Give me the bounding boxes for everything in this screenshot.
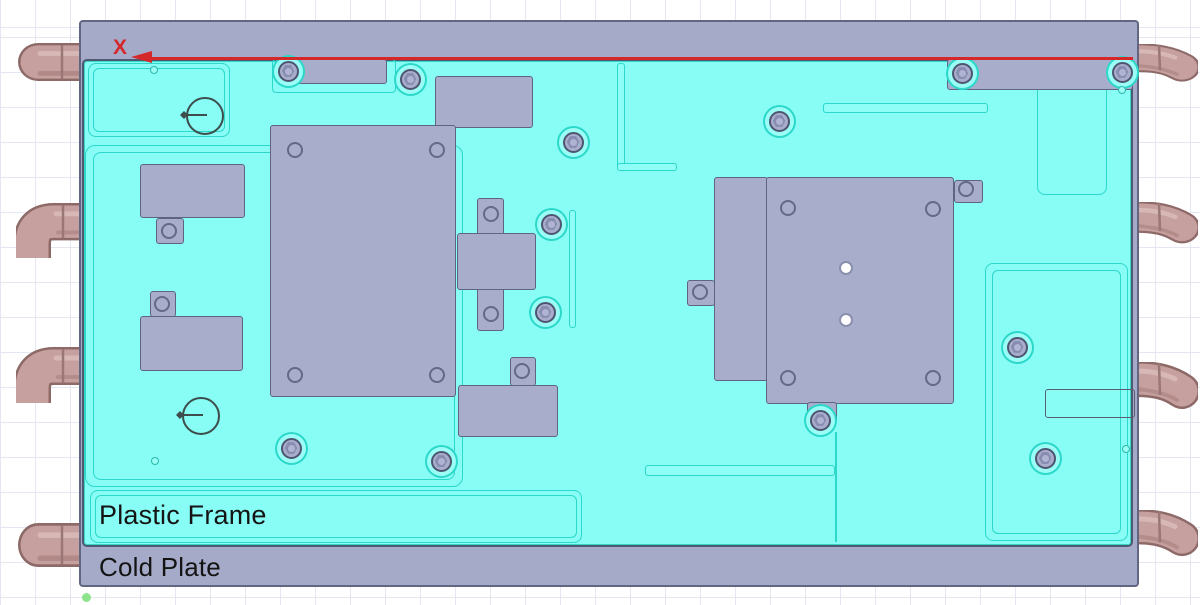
bottom-panel-divider — [835, 432, 837, 542]
small-block-upper[interactable] — [140, 164, 245, 218]
mount-hole — [780, 370, 796, 386]
pin-hole — [839, 313, 853, 327]
slot-vertical — [569, 210, 576, 328]
mount-hole — [483, 206, 499, 222]
plastic-frame-label: Plastic Frame — [99, 500, 267, 531]
right-module-left-strip[interactable] — [714, 177, 768, 381]
pin-hole — [839, 261, 853, 275]
datum-target-symbol — [186, 97, 224, 135]
lower-ext-block[interactable] — [458, 385, 558, 437]
datum-target-symbol — [182, 397, 220, 435]
l-wall-horizontal — [617, 163, 677, 171]
x-axis-line — [150, 57, 1133, 60]
mount-hole — [429, 142, 445, 158]
screw-fastener[interactable] — [1035, 448, 1056, 469]
screw-fastener[interactable] — [952, 63, 973, 84]
screw-fastener[interactable] — [278, 61, 299, 82]
mount-hole — [692, 284, 708, 300]
mount-hole — [429, 367, 445, 383]
x-axis-label: X — [113, 36, 127, 60]
mount-hole — [161, 223, 177, 239]
screw-fastener[interactable] — [769, 111, 790, 132]
heat-pipe[interactable] — [16, 43, 84, 86]
vent-slot-outline — [1045, 389, 1135, 418]
small-hole — [151, 457, 159, 465]
top-right-band[interactable] — [947, 59, 1133, 90]
heat-pipe[interactable] — [1135, 202, 1198, 251]
screw-fastener[interactable] — [535, 302, 556, 323]
origin-marker — [82, 593, 91, 602]
cad-viewport: X Plastic Frame Cold Plate — [0, 0, 1200, 605]
heat-pipe[interactable] — [16, 523, 84, 572]
small-hole — [1122, 445, 1130, 453]
mount-hole — [925, 201, 941, 217]
mount-hole — [154, 296, 170, 312]
small-hole — [150, 66, 158, 74]
heat-pipe[interactable] — [16, 347, 84, 408]
screw-fastener[interactable] — [810, 410, 831, 431]
mount-hole — [925, 370, 941, 386]
small-hole — [1118, 86, 1126, 94]
heat-pipe[interactable] — [1135, 510, 1198, 564]
screw-fastener[interactable] — [1007, 337, 1028, 358]
heat-pipe[interactable] — [16, 203, 84, 263]
screw-fastener[interactable] — [400, 69, 421, 90]
heat-pipe[interactable] — [1135, 362, 1198, 417]
mount-hole — [514, 363, 530, 379]
slot-top-right — [823, 103, 988, 113]
cold-plate-label: Cold Plate — [99, 552, 221, 583]
screw-fastener[interactable] — [281, 438, 302, 459]
screw-fastener[interactable] — [563, 132, 584, 153]
mount-hole — [958, 181, 974, 197]
l-wall-vertical — [617, 63, 625, 170]
screw-fastener[interactable] — [431, 451, 452, 472]
x-axis-arrow-icon — [131, 51, 152, 63]
large-left-module[interactable] — [270, 125, 456, 397]
upper-mid-block[interactable] — [435, 76, 533, 128]
mount-hole — [780, 200, 796, 216]
heat-pipe[interactable] — [1135, 44, 1198, 89]
mount-hole — [483, 306, 499, 322]
cross-module-horizontal[interactable] — [457, 233, 536, 290]
screw-fastener[interactable] — [1112, 62, 1133, 83]
mount-hole — [287, 367, 303, 383]
slot-bottom-middle — [645, 465, 835, 476]
screw-fastener[interactable] — [541, 214, 562, 235]
mount-hole — [287, 142, 303, 158]
small-block-lower[interactable] — [140, 316, 243, 371]
